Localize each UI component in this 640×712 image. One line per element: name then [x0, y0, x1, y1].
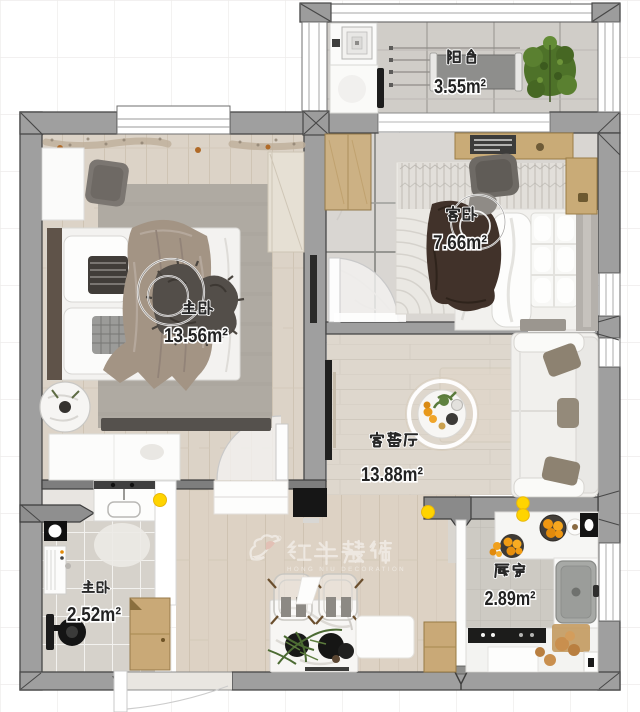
- svg-text:3.55m²: 3.55m²: [434, 76, 486, 98]
- svg-text:13.56m²: 13.56m²: [164, 325, 228, 347]
- svg-text:7.66m²: 7.66m²: [433, 232, 487, 254]
- svg-text:2.89m²: 2.89m²: [485, 588, 536, 610]
- svg-text:2.52m²: 2.52m²: [67, 604, 121, 626]
- svg-text:HONG NIU DECORATION: HONG NIU DECORATION: [287, 566, 406, 573]
- svg-text:13.88m²: 13.88m²: [361, 464, 423, 486]
